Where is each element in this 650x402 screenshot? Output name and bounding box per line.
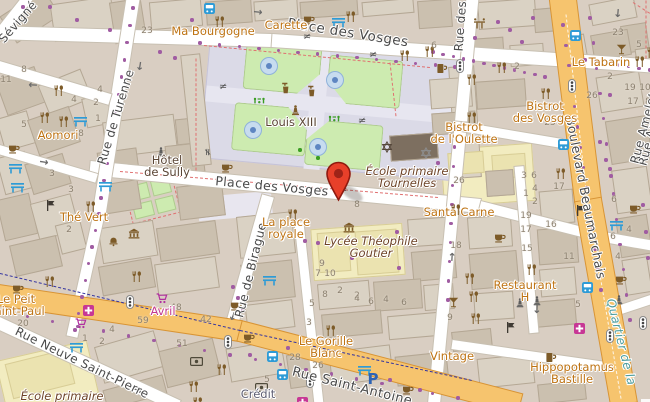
housenumber: 6	[401, 298, 407, 308]
tree-dot	[51, 320, 54, 323]
garden-cell	[154, 194, 177, 214]
poi-label-line: royale	[262, 228, 310, 240]
tree-dot	[441, 53, 444, 56]
poi-label: Lycée ThéophileGoutier	[324, 235, 417, 259]
gate-icon: ≠	[357, 115, 366, 127]
poi-label: Thé Vert	[60, 211, 108, 223]
housenumber: 17	[553, 182, 564, 192]
housenumber: 2	[607, 72, 613, 82]
tree-dot	[533, 73, 536, 76]
housenumber: 2	[337, 286, 343, 296]
poi-label-line: Goutier	[324, 247, 417, 259]
tree-dot	[125, 41, 128, 44]
housenumber: 5	[575, 300, 581, 310]
tree-dot	[543, 75, 546, 78]
tree-dot	[625, 293, 628, 296]
housenumber: 4	[383, 295, 389, 305]
housenumber: 2	[99, 337, 105, 347]
tree-dot	[48, 5, 51, 8]
housenumber: 10	[324, 269, 335, 279]
tree-dot	[190, 18, 193, 21]
tree-dot	[508, 28, 511, 31]
poi-label: RestaurantH	[494, 279, 557, 303]
tree-dot	[108, 28, 111, 31]
poi-label: Avril	[150, 305, 175, 317]
tree-dot	[80, 295, 83, 298]
gate-icon: ≠	[201, 147, 213, 156]
housenumber: 1	[523, 189, 529, 199]
housenumber: 3	[306, 318, 312, 328]
tree-dot	[248, 353, 251, 356]
tree-dot	[298, 148, 301, 151]
housenumber: 6	[368, 297, 374, 307]
tree-dot	[131, 6, 134, 9]
poi-label: Aomori	[38, 129, 79, 141]
building	[387, 312, 441, 340]
tree-dot	[75, 18, 78, 21]
housenumber: 4	[109, 325, 115, 335]
poi-label: Bistrotdes Vosges	[513, 100, 577, 124]
tree-dot	[127, 334, 130, 337]
housenumber: 3	[49, 169, 55, 179]
tree-dot	[90, 245, 93, 248]
housenumber: 19	[624, 83, 635, 93]
poi-label: Crédit	[241, 388, 276, 400]
housenumber: 42	[200, 315, 211, 325]
poi-label: Louis XIII	[265, 116, 316, 128]
housenumber: 6	[611, 195, 617, 205]
tree-dot	[599, 288, 602, 291]
map-canvas[interactable]: © Contributeurs de OpenStreetMap P≠≠≠≠≠≠…	[0, 0, 650, 402]
tree-dot	[336, 54, 339, 57]
poi-label-line: Vintage	[430, 350, 474, 362]
housenumber: 5	[309, 299, 315, 309]
housenumber: 4	[354, 294, 360, 304]
housenumber: 8	[322, 290, 328, 300]
poi-label-line: Le Tabarin	[572, 56, 631, 68]
tree-dot	[531, 16, 534, 19]
tree-dot	[496, 20, 499, 23]
housenumber: 23	[612, 28, 623, 38]
tree-dot	[388, 378, 391, 381]
housenumber: 26	[453, 176, 464, 186]
poi-label: La placeroyale	[262, 216, 310, 240]
housenumber: 19	[520, 211, 531, 221]
tree-dot	[646, 256, 649, 259]
housenumber: 17	[627, 97, 638, 107]
housenumber: 11	[0, 75, 11, 85]
tree-dot	[608, 93, 611, 96]
fountain-core	[315, 144, 321, 150]
poi-label: Carette	[265, 19, 308, 31]
poi-label: Bistrotde l'Oulette	[430, 121, 497, 145]
tree-dot	[628, 318, 631, 321]
tree-dot	[286, 346, 289, 349]
fountain	[309, 138, 327, 156]
housenumber: 1	[82, 334, 88, 344]
tree-dot	[449, 222, 452, 225]
housenumber: 5	[636, 40, 642, 50]
poi-label: Le GorilleBlanc	[299, 335, 353, 359]
tree-dot	[99, 196, 102, 199]
oneway-arrow-icon: →	[133, 60, 147, 71]
tree-dot	[472, 59, 475, 62]
poi-label-line: Thé Vert	[60, 211, 108, 223]
housenumber: 4	[71, 95, 77, 105]
fountain-core	[266, 63, 272, 69]
poi-label: Ma Bourgogne	[171, 25, 254, 37]
building	[154, 256, 220, 296]
housenumber: 4	[615, 252, 621, 262]
poi-label-line: H	[494, 291, 557, 303]
tree-dot	[608, 167, 611, 170]
building	[477, 0, 537, 30]
housenumber: 2	[532, 197, 538, 207]
poi-label-line: des Vosges	[513, 112, 577, 124]
tree-dot	[228, 353, 231, 356]
poi-label-line: Louis XIII	[265, 116, 316, 128]
tree-dot	[123, 58, 126, 61]
tree-dot	[561, 23, 564, 26]
tree-dot	[152, 339, 155, 342]
gate-icon: ≠	[218, 81, 227, 93]
tree-dot	[592, 41, 595, 44]
tree-dot	[520, 40, 523, 43]
building	[417, 0, 453, 29]
tree-dot	[380, 382, 383, 385]
poi-label-line: Bastille	[530, 373, 614, 385]
housenumber: 4	[97, 85, 103, 95]
oneway-arrow-icon: →	[530, 304, 543, 314]
gate-icon: ≠	[368, 49, 378, 61]
poi-label: Santa Carne	[424, 206, 495, 218]
housenumber: 4	[626, 225, 632, 235]
tree-dot	[257, 47, 260, 50]
housenumber: 6	[431, 41, 437, 51]
housenumber: 16	[545, 220, 556, 230]
poi-label: Hôtelde Sully	[144, 154, 190, 178]
housenumber: 9	[447, 313, 453, 323]
building	[9, 235, 63, 277]
tree-dot	[598, 140, 601, 143]
tree-dot	[418, 388, 421, 391]
tree-dot	[218, 43, 221, 46]
tree-dot	[128, 24, 131, 27]
tree-dot	[482, 62, 485, 65]
tree-dot	[102, 329, 105, 332]
fountain-core	[250, 127, 256, 133]
tree-dot	[231, 285, 234, 288]
tree-dot	[394, 60, 397, 63]
housenumber: 8	[78, 129, 84, 139]
poi-label: Le PeitSaint-Paul	[0, 293, 45, 317]
tree-dot	[641, 203, 644, 206]
tree-dot	[316, 156, 319, 159]
tree-dot	[173, 56, 176, 59]
poi-label-line: Avril	[150, 305, 175, 317]
poi-label-line: Saint-Paul	[0, 305, 45, 317]
tree-dot	[452, 165, 455, 168]
housenumber: 7	[315, 269, 321, 279]
tree-dot	[564, 44, 567, 47]
tree-dot	[158, 50, 161, 53]
building	[485, 169, 515, 197]
housenumber: 51	[176, 339, 187, 349]
poi-label-line: de Sully	[144, 166, 190, 178]
oneway-arrow-icon: →	[611, 8, 625, 18]
fountain-core	[332, 77, 338, 83]
tree-dot	[316, 241, 319, 244]
poi-label: Vintage	[430, 350, 474, 362]
housenumber: 6	[531, 171, 537, 181]
oneway-arrow-icon: →	[445, 252, 458, 262]
tree-dot	[602, 117, 605, 120]
housenumber: 15	[521, 244, 532, 254]
tree-dot	[598, 92, 601, 95]
housenumber: 2	[93, 98, 99, 108]
poi-label-line: Santa Carne	[424, 206, 495, 218]
oneway-arrow-icon: →	[28, 78, 38, 91]
housenumber: 23	[141, 26, 152, 36]
housenumber: 26	[586, 91, 597, 101]
housenumber: 6	[610, 232, 616, 242]
building	[467, 215, 513, 250]
poi-label-line: Aomori	[38, 129, 79, 141]
housenumber: 2	[514, 62, 520, 72]
route-dashed-red	[196, 59, 197, 171]
poi-label: École primaire	[20, 390, 103, 402]
housenumber: 1	[95, 114, 101, 124]
building	[373, 278, 423, 311]
poi-label-line: Ma Bourgogne	[171, 25, 254, 37]
tree-dot	[198, 41, 201, 44]
tree-dot	[605, 142, 608, 145]
tree-dot	[588, 16, 591, 19]
tree-dot	[609, 174, 612, 177]
fountain	[326, 71, 344, 89]
housenumber: 9	[319, 259, 325, 269]
housenumber: 3	[68, 185, 74, 195]
tree-dot	[618, 243, 621, 246]
housenumber: 59	[137, 316, 148, 326]
tree-dot	[644, 230, 647, 233]
poi-label: Le Tabarin	[572, 56, 631, 68]
poi-label-line: de l'Oulette	[430, 133, 497, 145]
tree-dot	[456, 396, 459, 399]
tree-dot	[523, 71, 526, 74]
poi-label-line: Carette	[265, 19, 308, 31]
housenumber: 5	[264, 375, 270, 385]
housenumber: 4	[532, 184, 538, 194]
tree-dot	[473, 36, 476, 39]
fountain	[260, 57, 278, 75]
tree-dot	[296, 51, 299, 54]
housenumber: 8	[21, 65, 27, 75]
housenumber: 5	[21, 120, 27, 130]
poi-label: HippopotamusBastille	[530, 361, 614, 385]
poi-label-line: Blanc	[299, 347, 353, 359]
fountain	[244, 121, 262, 139]
housenumber: 2	[66, 225, 72, 235]
housenumber: 11	[563, 252, 574, 262]
tree-dot	[84, 279, 87, 282]
oneway-arrow-icon: →	[253, 5, 264, 19]
housenumber: 18	[450, 241, 461, 251]
tree-dot	[397, 266, 400, 269]
poi-label-line: Crédit	[241, 388, 276, 400]
building	[361, 0, 414, 17]
poi-label: École primaireTournelles	[365, 165, 448, 189]
poi-label-line: École primaire	[20, 390, 103, 402]
poi-label-line: Tournelles	[365, 177, 448, 189]
housenumber: 17	[520, 225, 531, 235]
tree-dot	[604, 158, 607, 161]
housenumber: 3	[521, 171, 527, 181]
